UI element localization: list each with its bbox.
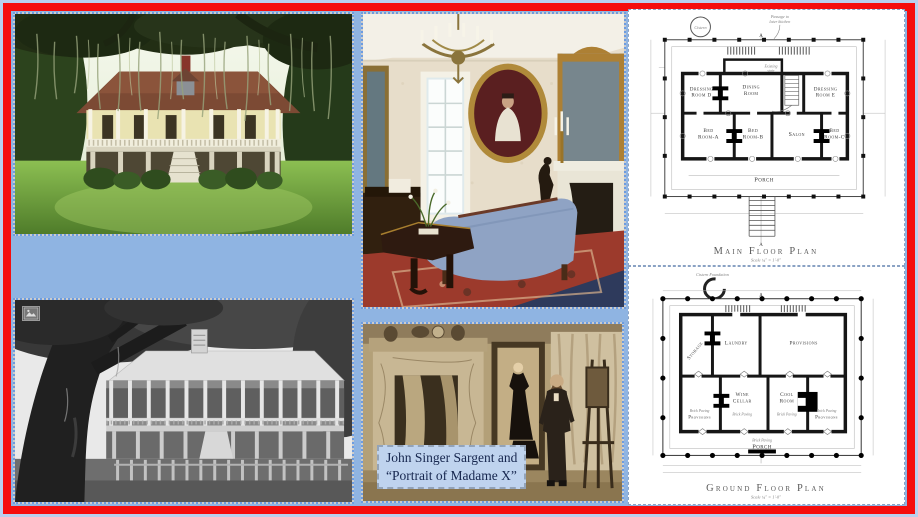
parlor-art: [363, 14, 624, 307]
ground-floor-plan-drawing: Cistern Foundation A: [629, 267, 904, 504]
oval-portrait: [468, 64, 547, 163]
room-salon: Salon: [789, 132, 805, 138]
picture-icon[interactable]: [22, 306, 40, 321]
room-bed-c-1: Bed: [829, 128, 839, 134]
slide-canvas: John Singer Sargent and “Portrait of Mad…: [0, 0, 918, 517]
main-stair-label-2: stair: [767, 68, 775, 73]
room-dining-1: Dining: [742, 84, 760, 90]
brick-paving-cool: Brick Paving: [777, 413, 797, 417]
room-bed-a-2: Room-A: [698, 134, 719, 140]
caption-line2: “Portrait of Madame X”: [386, 467, 517, 484]
room-laundry: Laundry: [725, 340, 748, 346]
brick-paving-porch: Brick Paving: [752, 439, 772, 443]
main-cistern-label: Cistern: [694, 25, 706, 30]
room-bed-c-2: Room-C: [824, 134, 845, 140]
photo-plantation-bw[interactable]: [13, 298, 354, 504]
brick-paving-right: Brick Paving: [817, 409, 837, 413]
main-floor-plan-drawing: Cistern Passage to later kitchen A A: [629, 10, 904, 265]
room-cool-1: Cool: [780, 392, 794, 398]
main-plan-scale: Scale ¼" = 1'-0": [751, 258, 781, 263]
room-bed-b-2: Room-B: [743, 134, 764, 140]
plantation-bw-art: [15, 300, 352, 502]
room-dining-2: Room: [744, 91, 759, 97]
room-provisions-top: Provisions: [790, 340, 818, 346]
brick-paving-wine: Brick Paving: [732, 413, 752, 417]
room-cool-2: Room: [780, 398, 795, 404]
plan-ground-floor[interactable]: Cistern Foundation A: [628, 266, 905, 505]
room-dressing-d-2: Room D: [691, 92, 711, 98]
front-steps: [749, 197, 775, 237]
room-dressing-e-2: Room E: [816, 92, 836, 98]
plan-main-floor[interactable]: Cistern Passage to later kitchen A A: [628, 9, 905, 266]
photo-plantation-color[interactable]: [13, 12, 354, 236]
main-passage-label-2: later kitchen: [769, 19, 790, 24]
room-provisions-right: Provisions: [815, 416, 838, 421]
room-porch-main: Porch: [754, 177, 773, 184]
french-door: [421, 72, 471, 221]
room-provisions-left: Provisions: [688, 416, 711, 421]
plantation-color-art: [15, 14, 352, 234]
ground-plan-scale: Scale ¼" = 1'-0": [751, 495, 781, 500]
main-plan-title: Main Floor Plan: [714, 246, 819, 257]
photo-parlor-interior[interactable]: [361, 12, 626, 309]
room-bed-a-1: Bed: [703, 128, 713, 134]
photo-sargent-studio[interactable]: John Singer Sargent and “Portrait of Mad…: [361, 322, 624, 503]
caption-box[interactable]: John Singer Sargent and “Portrait of Mad…: [377, 445, 526, 489]
room-wine-1: Wine: [736, 392, 749, 398]
room-wine-2: Cellar: [733, 398, 752, 404]
brick-paving-left: Brick Paving: [690, 409, 710, 413]
room-bed-b-1: Bed: [748, 128, 758, 134]
ground-plan-title: Ground Floor Plan: [706, 483, 826, 494]
ground-cistern-label: Cistern Foundation: [696, 272, 729, 277]
room-porch-ground: Porch: [752, 443, 771, 450]
caption-line1: John Singer Sargent and: [386, 449, 517, 466]
